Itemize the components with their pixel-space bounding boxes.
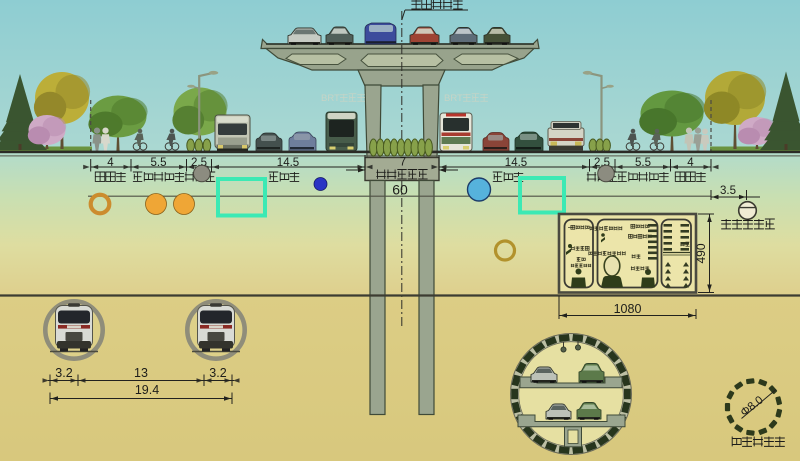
svg-text:490: 490 bbox=[694, 243, 708, 263]
svg-text:BRT: BRT bbox=[321, 93, 340, 104]
svg-text:5.5: 5.5 bbox=[635, 157, 651, 169]
svg-text:3.5: 3.5 bbox=[720, 185, 736, 197]
svg-text:3.2: 3.2 bbox=[55, 366, 72, 380]
svg-text:5.5: 5.5 bbox=[151, 157, 167, 169]
svg-text:14.5: 14.5 bbox=[277, 157, 299, 169]
svg-text:BRT: BRT bbox=[444, 93, 463, 104]
svg-text:4: 4 bbox=[107, 157, 114, 169]
svg-text:60: 60 bbox=[392, 182, 408, 198]
svg-text:13: 13 bbox=[134, 366, 148, 380]
svg-text:4: 4 bbox=[687, 157, 694, 169]
svg-text:14.5: 14.5 bbox=[505, 157, 527, 169]
svg-text:7: 7 bbox=[400, 157, 406, 169]
svg-text:1080: 1080 bbox=[614, 302, 642, 316]
svg-text:3.2: 3.2 bbox=[209, 366, 226, 380]
svg-text:19.4: 19.4 bbox=[135, 383, 159, 397]
